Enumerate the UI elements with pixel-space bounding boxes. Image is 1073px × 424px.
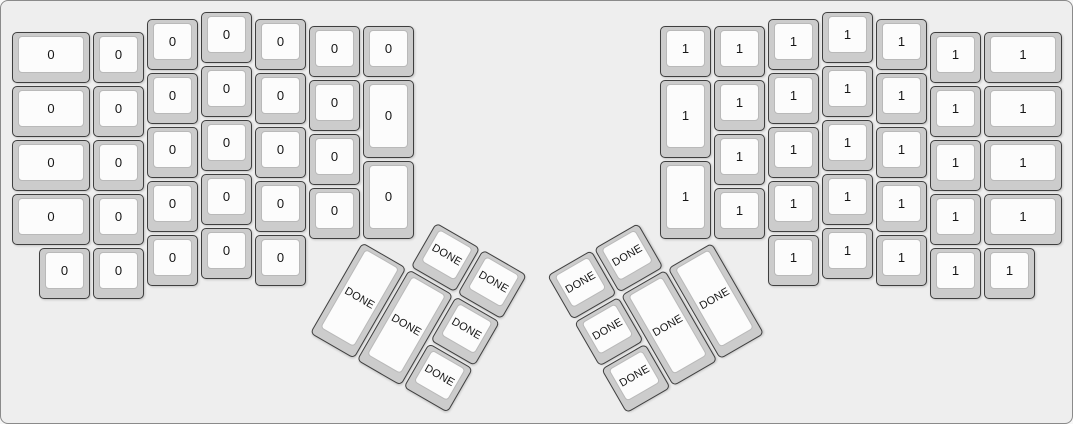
keycap-top-surface: 1 [828, 232, 867, 269]
key-legend: 1 [1019, 209, 1026, 224]
keycap-top-surface: 0 [45, 252, 84, 289]
key[interactable]: 0 [93, 248, 144, 299]
key[interactable]: 0 [12, 86, 90, 137]
key-legend: 0 [223, 27, 230, 42]
keycap-top-surface: 0 [261, 239, 300, 276]
keycap-top-surface: 1 [936, 198, 975, 235]
key[interactable]: 1 [984, 248, 1035, 299]
key[interactable]: 1 [714, 188, 765, 239]
key[interactable]: 1 [876, 73, 927, 124]
keycap-top-surface: 0 [153, 239, 192, 276]
key[interactable]: 1 [876, 127, 927, 178]
keycap-top-surface: 0 [207, 124, 246, 161]
key[interactable]: 1 [714, 26, 765, 77]
keycap-top-surface: 1 [828, 16, 867, 53]
key[interactable]: 1 [876, 235, 927, 286]
key-legend: 1 [898, 34, 905, 49]
keycap-top-surface: 0 [315, 138, 354, 175]
keycap-top-surface: 1 [774, 131, 813, 168]
keycap-top-surface: 1 [828, 70, 867, 107]
keycap-top-surface: 0 [207, 232, 246, 269]
key-legend: 1 [952, 47, 959, 62]
key-legend: 1 [736, 149, 743, 164]
key[interactable]: 0 [201, 174, 252, 225]
keycap-top-surface: 0 [99, 144, 138, 181]
key[interactable]: 1 [930, 32, 981, 83]
key-legend: 1 [682, 41, 689, 56]
key-legend: 0 [277, 34, 284, 49]
key-legend: 1 [1019, 47, 1026, 62]
key-legend: 0 [169, 142, 176, 157]
key[interactable]: 0 [39, 248, 90, 299]
keycap-top-surface: 0 [207, 70, 246, 107]
key[interactable]: 1 [660, 26, 711, 77]
key-legend: 0 [169, 250, 176, 265]
keycap-top-surface: 0 [315, 84, 354, 121]
key[interactable]: 0 [255, 73, 306, 124]
key-legend: DONE [697, 285, 731, 312]
kle-render-area: 0000000000000000000000000000000011111111… [0, 0, 1073, 424]
key-legend: 0 [61, 263, 68, 278]
keycap-top-surface: 1 [882, 131, 921, 168]
keycap-top-surface: 1 [936, 144, 975, 181]
key[interactable]: 1 [768, 19, 819, 70]
key-legend: 1 [898, 196, 905, 211]
keycap-top-surface: 0 [369, 165, 408, 229]
keycap-top-surface: 1 [990, 252, 1029, 289]
key[interactable]: 0 [93, 86, 144, 137]
keycap-top-surface: 1 [774, 23, 813, 60]
key[interactable]: 0 [363, 80, 414, 158]
key-legend: DONE [563, 268, 597, 295]
keycap-top-surface: 0 [261, 23, 300, 60]
key-legend: 0 [47, 101, 54, 116]
keycap-top-surface: 1 [720, 192, 759, 229]
key-legend: DONE [430, 241, 464, 268]
keycap-top-surface: 0 [18, 36, 84, 73]
key-legend: DONE [343, 284, 377, 311]
key[interactable]: 0 [12, 194, 90, 245]
keycap-top-surface: 0 [261, 77, 300, 114]
key[interactable]: 1 [876, 19, 927, 70]
key-legend: 1 [952, 209, 959, 224]
key[interactable]: 0 [255, 181, 306, 232]
keycap-top-surface: 1 [774, 239, 813, 276]
key-legend: 0 [115, 155, 122, 170]
key-legend: 1 [1019, 101, 1026, 116]
key-legend: DONE [617, 362, 651, 389]
key-legend: 1 [898, 142, 905, 157]
keycap-top-surface: 1 [828, 124, 867, 161]
key-legend: 0 [277, 196, 284, 211]
keycap-top-surface: DONE [601, 229, 653, 281]
key-legend: 0 [47, 155, 54, 170]
key[interactable]: 0 [147, 127, 198, 178]
key[interactable]: 1 [822, 174, 873, 225]
key-legend: 1 [844, 189, 851, 204]
key-legend: DONE [651, 312, 685, 339]
key-legend: 1 [790, 34, 797, 49]
key-legend: 1 [844, 135, 851, 150]
key[interactable]: 1 [768, 235, 819, 286]
key-legend: 0 [115, 101, 122, 116]
key[interactable]: 0 [255, 19, 306, 70]
keycap-top-surface: 1 [828, 178, 867, 215]
key-legend: 1 [682, 108, 689, 123]
key-legend: 1 [1019, 155, 1026, 170]
keycap-top-surface: 0 [261, 185, 300, 222]
key[interactable]: 1 [822, 12, 873, 63]
key[interactable]: 1 [984, 194, 1062, 245]
keycap-top-surface: 0 [99, 90, 138, 127]
key-legend: 0 [385, 108, 392, 123]
key-legend: 0 [223, 81, 230, 96]
key-legend: 1 [790, 142, 797, 157]
key[interactable]: 0 [255, 127, 306, 178]
key-legend: 1 [790, 196, 797, 211]
keyboard-canvas: 0000000000000000000000000000000011111111… [0, 0, 1073, 424]
keycap-top-surface: 0 [369, 30, 408, 67]
key-legend: 1 [844, 243, 851, 258]
key-legend: DONE [610, 241, 644, 268]
keycap-top-surface: 0 [18, 144, 84, 181]
keycap-top-surface: 1 [666, 165, 705, 229]
key[interactable]: 1 [714, 80, 765, 131]
key[interactable]: 0 [147, 181, 198, 232]
keycap-top-surface: 1 [936, 90, 975, 127]
key[interactable]: 1 [930, 248, 981, 299]
key-legend: 0 [223, 243, 230, 258]
key[interactable]: 1 [660, 80, 711, 158]
keycap-top-surface: DONE [608, 350, 660, 402]
key[interactable]: 1 [768, 127, 819, 178]
key-legend: 1 [844, 81, 851, 96]
keycap-top-surface: 1 [936, 252, 975, 289]
keycap-top-surface: 1 [882, 23, 921, 60]
key[interactable]: 0 [147, 19, 198, 70]
key[interactable]: 1 [876, 181, 927, 232]
key[interactable]: 0 [363, 26, 414, 77]
keycap-top-surface: 0 [315, 192, 354, 229]
key-legend: 0 [385, 41, 392, 56]
keycap-top-surface: 1 [774, 185, 813, 222]
key-legend: 0 [169, 34, 176, 49]
keycap-top-surface: 0 [18, 90, 84, 127]
key-legend: DONE [477, 268, 511, 295]
keycap-top-surface: DONE [421, 229, 473, 281]
keycap-top-surface: 0 [315, 30, 354, 67]
key[interactable]: 0 [309, 188, 360, 239]
key[interactable]: 1 [660, 161, 711, 239]
key-legend: 0 [277, 142, 284, 157]
keycap-top-surface: 0 [99, 252, 138, 289]
key-legend: 1 [736, 41, 743, 56]
keycap-top-surface: 1 [990, 90, 1056, 127]
key-legend: 1 [952, 155, 959, 170]
key[interactable]: 0 [201, 228, 252, 279]
key-legend: 0 [115, 263, 122, 278]
key[interactable]: 1 [930, 194, 981, 245]
keycap-top-surface: 1 [990, 36, 1056, 73]
keycap-top-surface: 0 [99, 36, 138, 73]
key[interactable]: 0 [147, 235, 198, 286]
keycap-top-surface: 0 [153, 131, 192, 168]
key-legend: 1 [790, 250, 797, 265]
key[interactable]: 1 [984, 32, 1062, 83]
key[interactable]: 1 [768, 73, 819, 124]
keycap-top-surface: DONE [554, 256, 606, 308]
key[interactable]: 0 [12, 32, 90, 83]
key-legend: 0 [115, 47, 122, 62]
key[interactable]: 0 [93, 32, 144, 83]
key[interactable]: 0 [309, 26, 360, 77]
keycap-top-surface: 0 [261, 131, 300, 168]
key-legend: 0 [331, 95, 338, 110]
key[interactable]: 1 [984, 86, 1062, 137]
keycap-top-surface: 1 [720, 30, 759, 67]
key-legend: DONE [450, 315, 484, 342]
key-legend: DONE [389, 311, 423, 338]
keycap-top-surface: 1 [990, 198, 1056, 235]
key-legend: DONE [423, 362, 457, 389]
key[interactable]: 0 [309, 80, 360, 131]
key-legend: 1 [736, 203, 743, 218]
key[interactable]: 1 [822, 228, 873, 279]
keycap-top-surface: 1 [720, 84, 759, 121]
keycap-top-surface: 0 [369, 84, 408, 148]
key[interactable]: 0 [363, 161, 414, 239]
keycap-top-surface: 1 [882, 239, 921, 276]
key-legend: 1 [790, 88, 797, 103]
key[interactable]: 1 [930, 140, 981, 191]
key[interactable]: 0 [93, 194, 144, 245]
keycap-top-surface: 1 [882, 77, 921, 114]
key-legend: 0 [331, 41, 338, 56]
key[interactable]: 0 [93, 140, 144, 191]
key[interactable]: 0 [309, 134, 360, 185]
key[interactable]: 0 [201, 12, 252, 63]
key-legend: DONE [590, 315, 624, 342]
key[interactable]: 0 [255, 235, 306, 286]
key[interactable]: 1 [822, 66, 873, 117]
key-legend: 1 [1006, 263, 1013, 278]
key-legend: 0 [169, 88, 176, 103]
key-legend: 1 [898, 88, 905, 103]
key-legend: 1 [682, 189, 689, 204]
key[interactable]: 1 [714, 134, 765, 185]
keycap-top-surface: 0 [207, 178, 246, 215]
key-legend: 0 [277, 250, 284, 265]
key[interactable]: 0 [201, 120, 252, 171]
keycap-top-surface: 1 [720, 138, 759, 175]
key[interactable]: 1 [768, 181, 819, 232]
keycap-top-surface: 0 [153, 185, 192, 222]
keycap-top-surface: 0 [99, 198, 138, 235]
key-legend: 0 [169, 196, 176, 211]
key-legend: 0 [115, 209, 122, 224]
key-legend: 1 [952, 101, 959, 116]
key[interactable]: 1 [822, 120, 873, 171]
keycap-top-surface: 1 [936, 36, 975, 73]
key[interactable]: 0 [147, 73, 198, 124]
key-legend: 0 [223, 135, 230, 150]
key-legend: 1 [952, 263, 959, 278]
key-legend: 0 [331, 149, 338, 164]
key-legend: 0 [223, 189, 230, 204]
keycap-top-surface: DONE [581, 303, 633, 355]
keycap-top-surface: 1 [774, 77, 813, 114]
key[interactable]: 1 [984, 140, 1062, 191]
keycap-top-surface: 1 [882, 185, 921, 222]
key-legend: 0 [385, 189, 392, 204]
keycap-top-surface: DONE [468, 256, 520, 308]
keycap-top-surface: 0 [153, 77, 192, 114]
key-legend: 1 [844, 27, 851, 42]
keycap-top-surface: 1 [666, 30, 705, 67]
key-legend: 0 [47, 209, 54, 224]
key[interactable]: 0 [201, 66, 252, 117]
keycap-top-surface: 1 [990, 144, 1056, 181]
key-legend: 0 [331, 203, 338, 218]
key-legend: 1 [736, 95, 743, 110]
key[interactable]: 1 [930, 86, 981, 137]
key-legend: 0 [277, 88, 284, 103]
keycap-top-surface: 1 [666, 84, 705, 148]
keycap-top-surface: 0 [207, 16, 246, 53]
key-legend: 0 [47, 47, 54, 62]
key-legend: 1 [898, 250, 905, 265]
key[interactable]: 0 [12, 140, 90, 191]
keycap-top-surface: 0 [153, 23, 192, 60]
keycap-top-surface: 0 [18, 198, 84, 235]
